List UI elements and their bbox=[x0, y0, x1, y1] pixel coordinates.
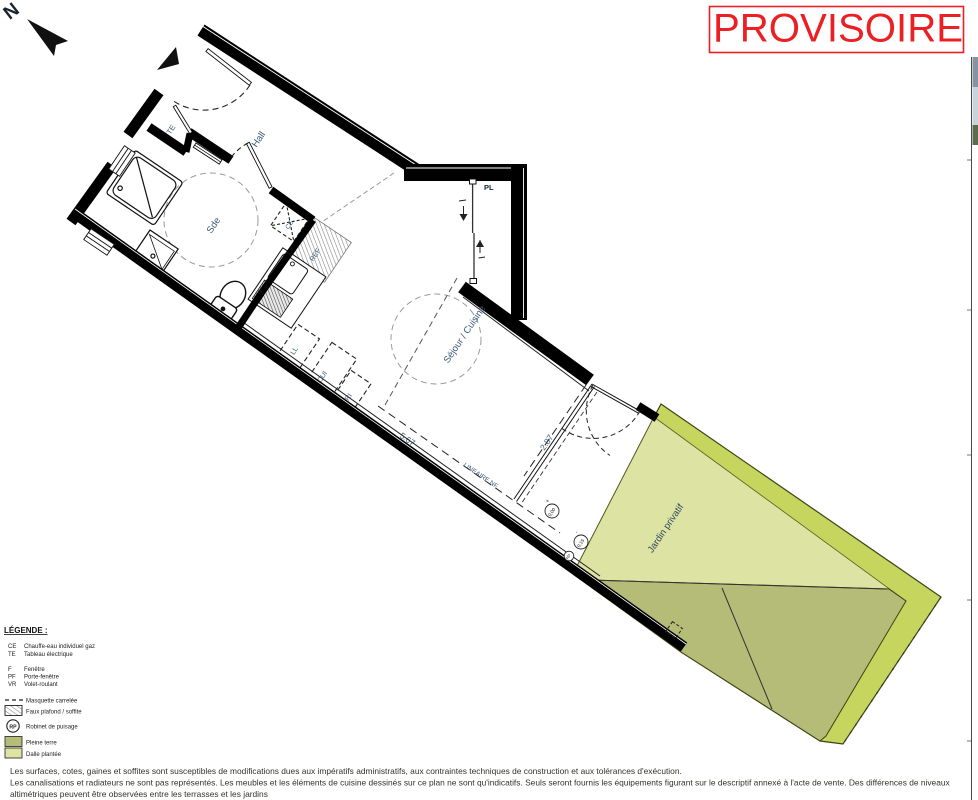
svg-text:Masquette carrelée: Masquette carrelée bbox=[26, 699, 78, 705]
svg-text:Tableau électrique: Tableau électrique bbox=[24, 652, 73, 658]
svg-text:Les surfaces, cotes, gaines et: Les surfaces, cotes, gaines et soffites … bbox=[10, 766, 682, 776]
svg-text:F: F bbox=[8, 667, 12, 673]
svg-text:VR: VR bbox=[8, 682, 17, 688]
svg-text:Porte-fenêtre: Porte-fenêtre bbox=[24, 675, 60, 681]
svg-text:PL: PL bbox=[484, 183, 494, 192]
svg-text:RP: RP bbox=[9, 724, 17, 730]
svg-text:altimétriques peuvent être obs: altimétriques peuvent être observées ent… bbox=[10, 789, 268, 799]
svg-text:Volet-roulant: Volet-roulant bbox=[24, 682, 58, 688]
svg-text:Les canalisations et radiateur: Les canalisations et radiateurs ne sont … bbox=[10, 778, 951, 788]
svg-text:Faux plafond / soffite: Faux plafond / soffite bbox=[26, 710, 82, 716]
svg-text:PROVISOIRE: PROVISOIRE bbox=[713, 7, 963, 51]
svg-text:Fenêtre: Fenêtre bbox=[24, 667, 45, 673]
svg-text:Robinet de puisage: Robinet de puisage bbox=[26, 725, 78, 731]
svg-text:Chauffe-eau individuel gaz: Chauffe-eau individuel gaz bbox=[24, 644, 95, 650]
svg-text:CE: CE bbox=[8, 644, 16, 650]
svg-text:Pleine terre: Pleine terre bbox=[26, 741, 57, 747]
svg-text:TE: TE bbox=[8, 652, 16, 658]
svg-text:LÉGENDE :: LÉGENDE : bbox=[4, 626, 48, 635]
svg-text:Dalle plantée: Dalle plantée bbox=[26, 752, 62, 758]
svg-text:PF: PF bbox=[8, 675, 16, 681]
